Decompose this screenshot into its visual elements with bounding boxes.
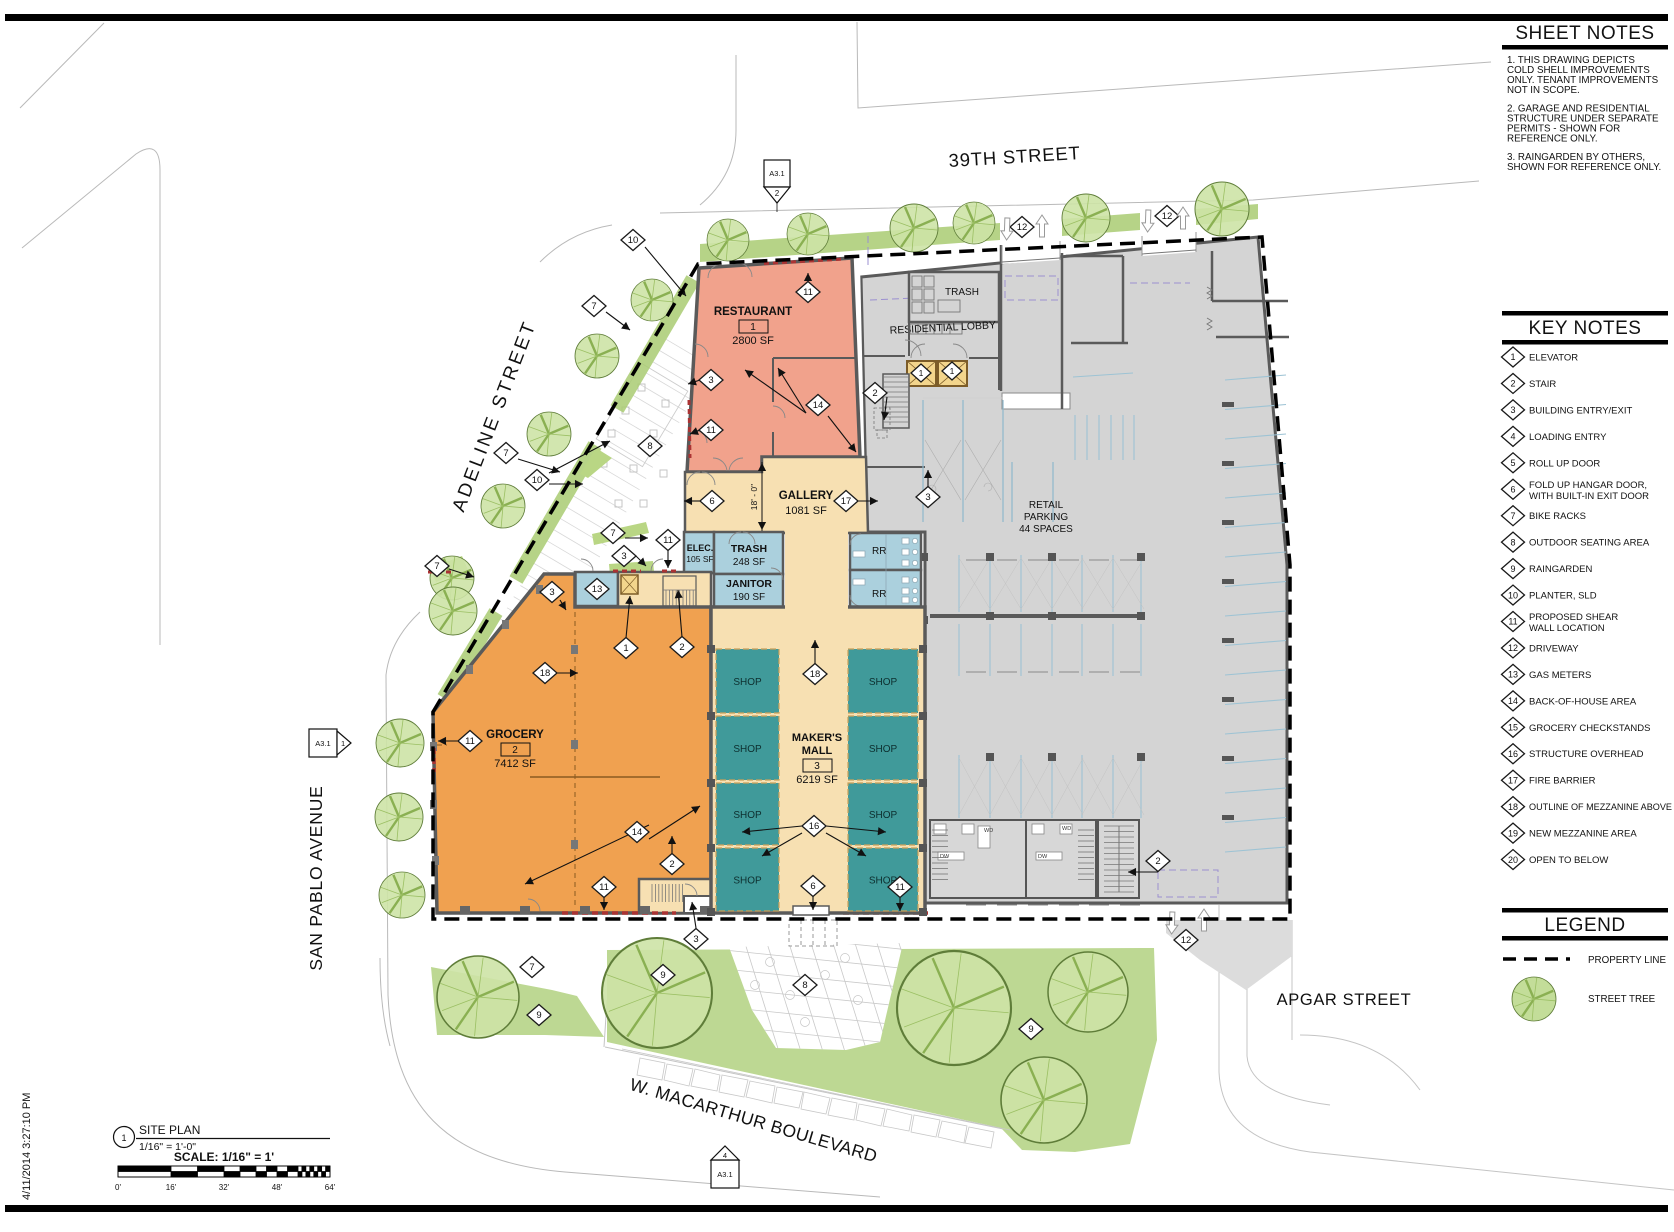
svg-text:3: 3 bbox=[1510, 405, 1515, 415]
svg-text:3: 3 bbox=[549, 587, 554, 598]
svg-text:18: 18 bbox=[810, 669, 821, 680]
svg-text:18: 18 bbox=[1508, 802, 1518, 812]
svg-text:LEGEND: LEGEND bbox=[1544, 915, 1625, 936]
svg-text:SHOP: SHOP bbox=[733, 744, 762, 755]
svg-text:2: 2 bbox=[1510, 379, 1515, 389]
svg-text:17: 17 bbox=[841, 496, 852, 507]
svg-text:WITH BUILT-IN EXIT DOOR: WITH BUILT-IN EXIT DOOR bbox=[1529, 491, 1649, 502]
svg-text:SHOP: SHOP bbox=[733, 677, 762, 688]
svg-text:MAKER'S: MAKER'S bbox=[792, 732, 842, 744]
svg-text:6: 6 bbox=[810, 881, 815, 892]
svg-text:ELEVATOR: ELEVATOR bbox=[1529, 353, 1578, 364]
svg-text:11: 11 bbox=[663, 535, 673, 546]
svg-text:7: 7 bbox=[591, 301, 596, 312]
svg-text:7: 7 bbox=[529, 962, 534, 973]
svg-text:7: 7 bbox=[503, 448, 508, 459]
svg-text:KEY NOTES: KEY NOTES bbox=[1529, 318, 1642, 339]
svg-text:RAINGARDEN: RAINGARDEN bbox=[1529, 564, 1592, 575]
svg-text:DW: DW bbox=[940, 854, 950, 860]
svg-text:7: 7 bbox=[434, 561, 439, 572]
svg-text:PROPOSED SHEAR: PROPOSED SHEAR bbox=[1529, 612, 1618, 623]
svg-text:8: 8 bbox=[1510, 537, 1515, 547]
svg-text:ELEC.: ELEC. bbox=[687, 543, 714, 553]
svg-text:8: 8 bbox=[802, 980, 807, 991]
svg-text:BUILDING ENTRY/EXIT: BUILDING ENTRY/EXIT bbox=[1529, 405, 1632, 416]
svg-text:16': 16' bbox=[166, 1183, 177, 1192]
svg-text:7412 SF: 7412 SF bbox=[494, 758, 536, 770]
svg-text:4: 4 bbox=[1510, 432, 1515, 442]
svg-text:LOADING ENTRY: LOADING ENTRY bbox=[1529, 432, 1607, 443]
svg-text:7: 7 bbox=[1510, 511, 1515, 521]
svg-text:RR: RR bbox=[872, 589, 886, 600]
svg-text:SHOP: SHOP bbox=[869, 810, 898, 821]
svg-text:20: 20 bbox=[1508, 855, 1518, 865]
svg-text:SHOP: SHOP bbox=[869, 744, 898, 755]
svg-text:44 SPACES: 44 SPACES bbox=[1019, 524, 1073, 535]
svg-text:2: 2 bbox=[679, 642, 684, 653]
svg-text:2: 2 bbox=[872, 388, 877, 399]
svg-text:SAN PABLO AVENUE: SAN PABLO AVENUE bbox=[306, 785, 326, 970]
svg-text:6: 6 bbox=[1510, 484, 1515, 494]
svg-text:STREET TREE: STREET TREE bbox=[1588, 994, 1656, 1005]
svg-text:OUTDOOR SEATING AREA: OUTDOOR SEATING AREA bbox=[1529, 538, 1650, 549]
svg-text:4/11/2014 3:27:10 PM: 4/11/2014 3:27:10 PM bbox=[21, 1093, 33, 1200]
svg-text:13: 13 bbox=[1508, 670, 1518, 680]
svg-text:9: 9 bbox=[1510, 564, 1515, 574]
svg-text:DW: DW bbox=[1038, 854, 1048, 860]
svg-text:WALL LOCATION: WALL LOCATION bbox=[1529, 623, 1605, 634]
svg-text:15: 15 bbox=[1508, 723, 1518, 733]
svg-text:11: 11 bbox=[1508, 617, 1517, 627]
svg-text:3: 3 bbox=[925, 492, 930, 503]
svg-text:18: 18 bbox=[540, 668, 551, 679]
svg-text:JANITOR: JANITOR bbox=[726, 578, 772, 590]
svg-text:TRASH: TRASH bbox=[731, 543, 767, 555]
svg-text:12: 12 bbox=[1017, 222, 1028, 233]
svg-text:OUTLINE OF MEZZANINE ABOVE: OUTLINE OF MEZZANINE ABOVE bbox=[1529, 802, 1672, 812]
svg-text:12: 12 bbox=[1508, 643, 1518, 653]
svg-text:SHOP: SHOP bbox=[733, 810, 762, 821]
svg-text:2800 SF: 2800 SF bbox=[732, 335, 774, 347]
svg-text:19: 19 bbox=[1508, 828, 1518, 838]
svg-text:12: 12 bbox=[1162, 211, 1173, 222]
svg-text:1: 1 bbox=[623, 643, 628, 654]
svg-text:GALLERY: GALLERY bbox=[779, 490, 834, 502]
svg-text:5: 5 bbox=[1510, 458, 1515, 468]
svg-text:3: 3 bbox=[693, 934, 698, 945]
svg-text:4: 4 bbox=[723, 1151, 727, 1160]
svg-text:16: 16 bbox=[1508, 749, 1518, 759]
svg-text:11: 11 bbox=[706, 425, 716, 436]
svg-text:GROCERY: GROCERY bbox=[486, 729, 544, 741]
svg-text:SHOP: SHOP bbox=[733, 876, 762, 887]
svg-text:16: 16 bbox=[809, 821, 820, 832]
svg-text:14: 14 bbox=[1508, 696, 1518, 706]
svg-text:32': 32' bbox=[219, 1183, 230, 1192]
svg-text:3: 3 bbox=[708, 375, 713, 386]
svg-text:2: 2 bbox=[775, 189, 780, 198]
svg-text:1: 1 bbox=[1510, 352, 1515, 362]
svg-text:11: 11 bbox=[803, 287, 813, 298]
svg-text:WD: WD bbox=[1062, 826, 1071, 832]
svg-text:FIRE BARRIER: FIRE BARRIER bbox=[1529, 776, 1596, 787]
svg-text:STAIR: STAIR bbox=[1529, 379, 1556, 390]
svg-text:REFERENCE ONLY.: REFERENCE ONLY. bbox=[1507, 134, 1598, 145]
svg-text:3: 3 bbox=[814, 761, 820, 772]
svg-text:12: 12 bbox=[1181, 935, 1192, 946]
svg-text:1: 1 bbox=[341, 739, 345, 748]
svg-text:10: 10 bbox=[1508, 590, 1518, 600]
svg-text:NEW MEZZANINE AREA: NEW MEZZANINE AREA bbox=[1529, 829, 1637, 840]
svg-text:PARKING: PARKING bbox=[1024, 512, 1068, 523]
svg-text:SHEET NOTES: SHEET NOTES bbox=[1515, 23, 1654, 44]
svg-text:7: 7 bbox=[610, 528, 615, 539]
svg-text:2: 2 bbox=[1155, 856, 1160, 867]
svg-text:GROCERY CHECKSTANDS: GROCERY CHECKSTANDS bbox=[1529, 723, 1650, 734]
svg-text:1: 1 bbox=[121, 1133, 126, 1143]
svg-text:GAS METERS: GAS METERS bbox=[1529, 670, 1591, 681]
svg-text:FOLD UP HANGAR DOOR,: FOLD UP HANGAR DOOR, bbox=[1529, 480, 1647, 491]
svg-text:2: 2 bbox=[669, 859, 674, 870]
svg-text:10: 10 bbox=[628, 235, 639, 246]
svg-text:14: 14 bbox=[632, 827, 643, 838]
svg-text:9: 9 bbox=[536, 1010, 541, 1021]
svg-text:1: 1 bbox=[950, 366, 955, 376]
svg-text:8: 8 bbox=[647, 441, 652, 452]
svg-text:64': 64' bbox=[325, 1183, 336, 1192]
svg-text:STRUCTURE OVERHEAD: STRUCTURE OVERHEAD bbox=[1529, 749, 1644, 760]
svg-text:17: 17 bbox=[1508, 775, 1518, 785]
svg-text:A3.1: A3.1 bbox=[717, 1170, 732, 1179]
svg-text:MALL: MALL bbox=[802, 745, 833, 757]
svg-text:11: 11 bbox=[599, 882, 609, 893]
svg-text:BACK-OF-HOUSE AREA: BACK-OF-HOUSE AREA bbox=[1529, 696, 1637, 707]
svg-text:14: 14 bbox=[813, 400, 824, 411]
svg-text:48': 48' bbox=[272, 1183, 283, 1192]
svg-text:TRASH: TRASH bbox=[945, 287, 979, 298]
svg-text:NOT IN SCOPE.: NOT IN SCOPE. bbox=[1507, 85, 1580, 96]
svg-text:SCALE: 1/16" = 1': SCALE: 1/16" = 1' bbox=[174, 1150, 274, 1164]
svg-text:RETAIL: RETAIL bbox=[1029, 500, 1064, 511]
svg-text:11: 11 bbox=[465, 736, 475, 747]
svg-text:6: 6 bbox=[709, 496, 714, 507]
svg-text:A3.1: A3.1 bbox=[769, 169, 784, 178]
svg-text:RESTAURANT: RESTAURANT bbox=[714, 306, 792, 318]
svg-text:0': 0' bbox=[115, 1183, 121, 1192]
svg-text:SHOWN FOR REFERENCE ONLY.: SHOWN FOR REFERENCE ONLY. bbox=[1507, 162, 1661, 173]
svg-text:SITE PLAN: SITE PLAN bbox=[139, 1123, 200, 1137]
svg-text:190 SF: 190 SF bbox=[733, 592, 765, 603]
svg-text:18' - 0": 18' - 0" bbox=[749, 484, 759, 510]
svg-text:248 SF: 248 SF bbox=[733, 557, 765, 568]
svg-text:11: 11 bbox=[895, 882, 905, 893]
svg-text:105 SF: 105 SF bbox=[686, 554, 713, 564]
svg-text:PLANTER, SLD: PLANTER, SLD bbox=[1529, 591, 1597, 602]
svg-text:RR: RR bbox=[872, 546, 886, 557]
svg-text:9: 9 bbox=[660, 970, 665, 981]
svg-text:1: 1 bbox=[750, 322, 756, 333]
svg-text:1: 1 bbox=[919, 368, 924, 378]
svg-text:1081 SF: 1081 SF bbox=[785, 505, 827, 517]
svg-text:13: 13 bbox=[592, 584, 603, 595]
svg-text:A3.1: A3.1 bbox=[315, 739, 330, 748]
svg-text:3: 3 bbox=[621, 551, 626, 562]
svg-text:DRIVEWAY: DRIVEWAY bbox=[1529, 644, 1579, 655]
svg-text:SHOP: SHOP bbox=[869, 677, 898, 688]
svg-text:APGAR STREET: APGAR STREET bbox=[1277, 991, 1412, 1009]
svg-text:9: 9 bbox=[1028, 1024, 1033, 1035]
svg-text:WD: WD bbox=[984, 828, 993, 834]
svg-text:PROPERTY LINE: PROPERTY LINE bbox=[1588, 955, 1667, 966]
svg-text:OPEN TO BELOW: OPEN TO BELOW bbox=[1529, 855, 1608, 866]
svg-text:6219 SF: 6219 SF bbox=[796, 774, 838, 786]
svg-text:10: 10 bbox=[532, 475, 543, 486]
svg-text:BIKE RACKS: BIKE RACKS bbox=[1529, 511, 1586, 522]
svg-text:ROLL UP DOOR: ROLL UP DOOR bbox=[1529, 458, 1600, 469]
svg-text:2: 2 bbox=[512, 745, 518, 756]
